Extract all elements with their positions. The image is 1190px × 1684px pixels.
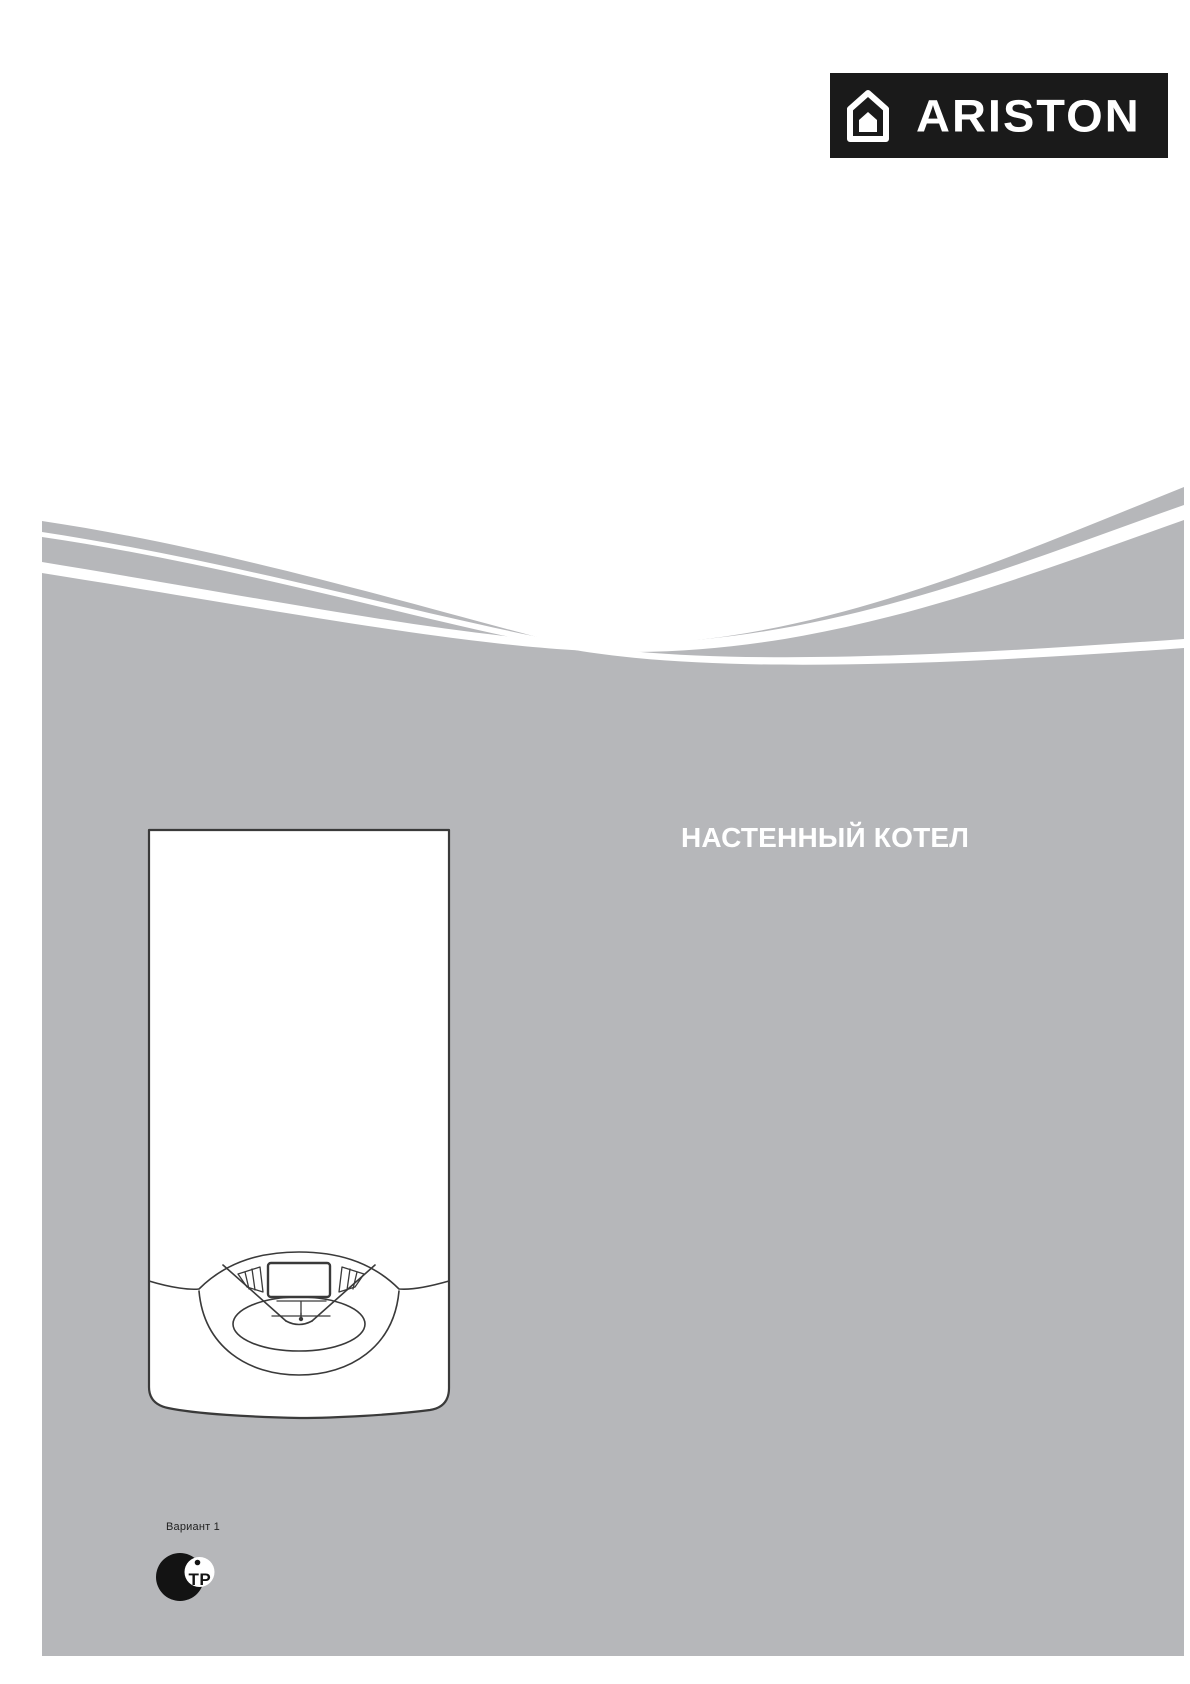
boiler-display: [268, 1263, 330, 1297]
variant-label: Вариант 1: [166, 1521, 220, 1533]
panel-latch-dot: [299, 1317, 303, 1321]
document-page: ТР ARISTON НАСТЕННЫЙ КОТЕЛ Вариант 1: [0, 0, 1190, 1684]
boiler-body: [149, 830, 449, 1418]
boiler-illustration: [149, 830, 449, 1418]
cert-letters: ТР: [189, 1570, 212, 1589]
house-icon: [847, 90, 889, 142]
cover-title: НАСТЕННЫЙ КОТЕЛ: [681, 822, 969, 854]
ariston-logo: ARISTON: [830, 73, 1168, 158]
brand-name: ARISTON: [916, 93, 1141, 138]
cert-dot: [195, 1560, 201, 1566]
cover-art: ТР: [0, 0, 1190, 1684]
